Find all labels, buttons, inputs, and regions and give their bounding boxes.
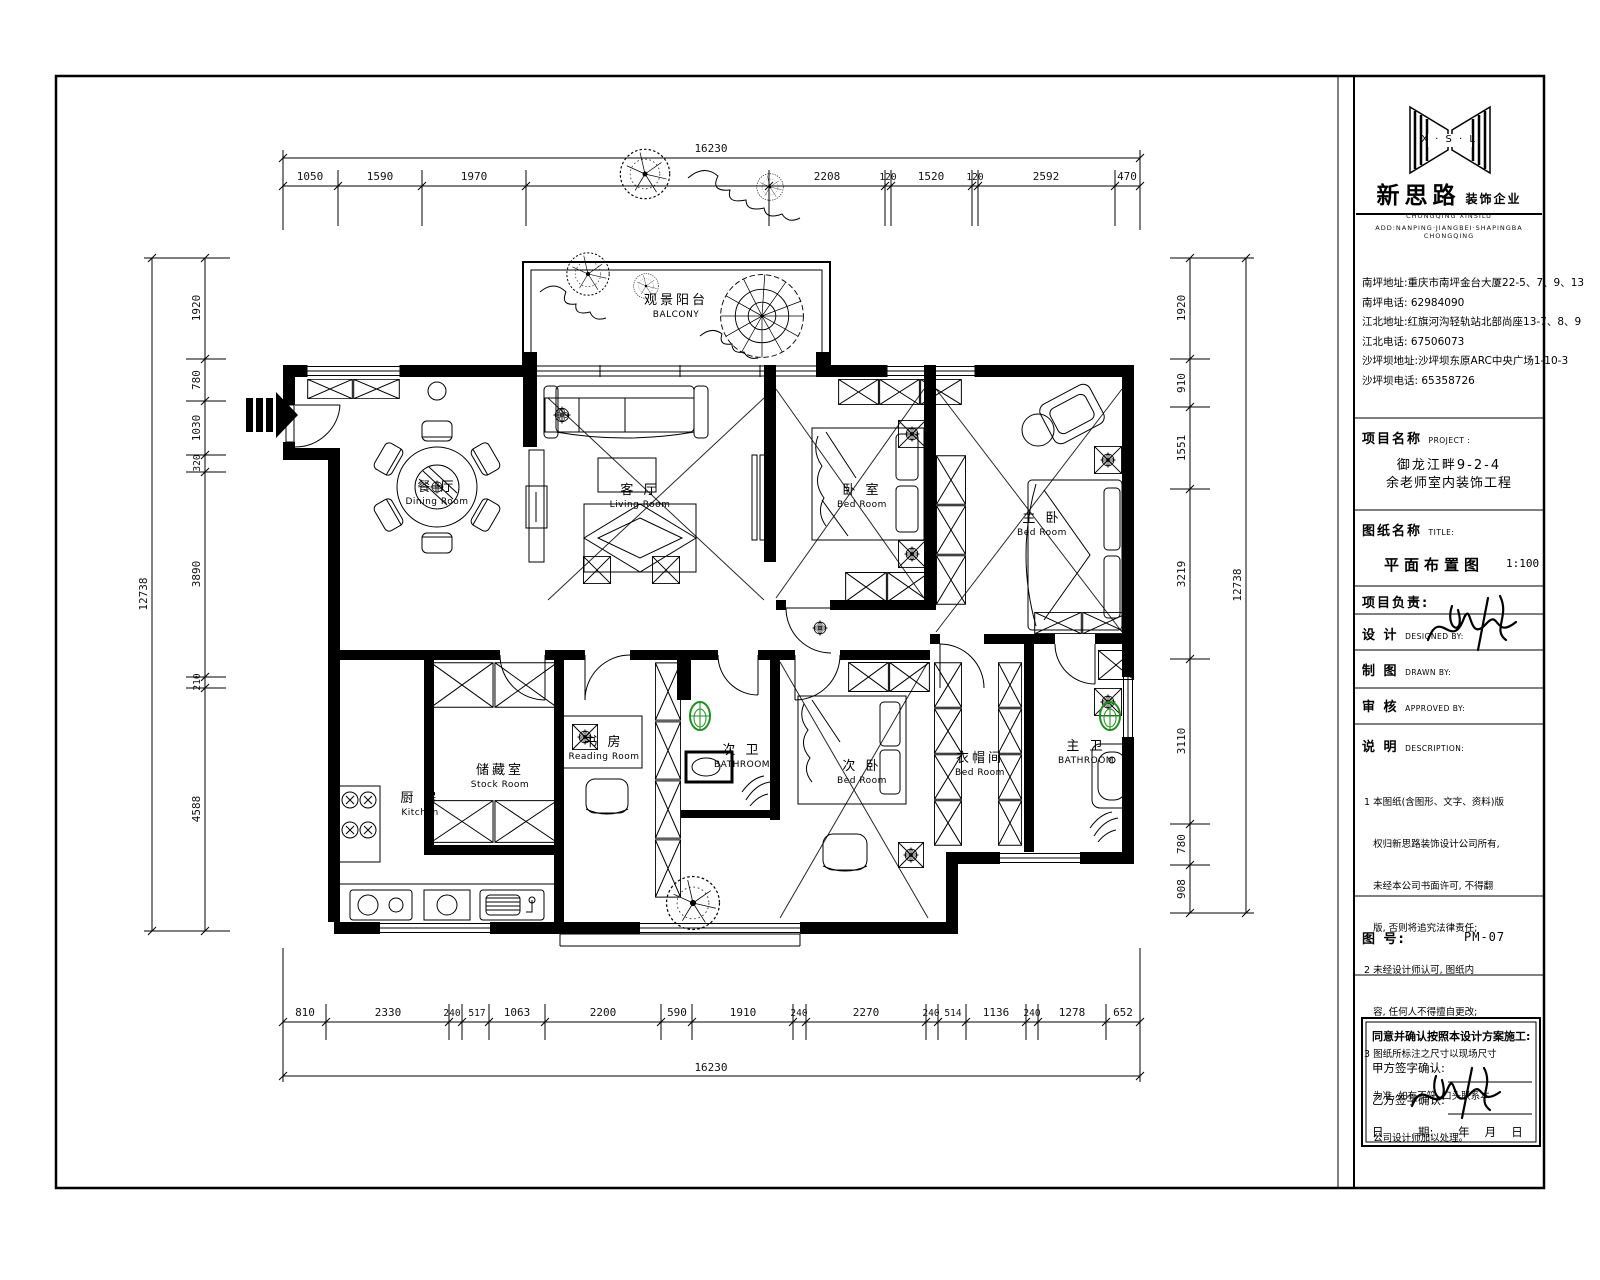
room-label-bedroom1: 卧 室	[842, 482, 881, 498]
dim: 2208	[814, 170, 841, 183]
dim: 240	[790, 1008, 807, 1019]
room-label-kitchen: 厨 房	[400, 790, 439, 806]
dim: 120	[966, 172, 983, 183]
dim: 590	[667, 1006, 687, 1019]
address-line: 沙坪坝电话: 65358726	[1362, 372, 1584, 392]
party-a-label: 甲方签字确认:	[1372, 1060, 1445, 1076]
project-name-line1: 御龙江畔9-2-4	[1356, 454, 1542, 473]
room-label-reading: 书 房	[584, 734, 623, 750]
dim: 780	[190, 370, 203, 390]
room-label-stock: 储藏室	[476, 762, 524, 778]
leader-label: 项目负责:	[1362, 592, 1429, 611]
notes-label-en: DESCRIPTION:	[1405, 744, 1464, 753]
room-label-en: BATHROOM	[1058, 756, 1114, 766]
dim: 2330	[375, 1006, 402, 1019]
room-label-en: Bed Room	[837, 776, 887, 786]
dim: 240	[922, 1008, 939, 1019]
sheet-scale: 1:100	[1506, 557, 1539, 570]
dim: 2592	[1033, 170, 1060, 183]
note-line: 容, 任何人不得擅自更改;	[1364, 1006, 1540, 1020]
design-label-en: DESIGNED BY:	[1405, 632, 1464, 641]
dimension-left: 12738 1920 780 1030 320 3890 210 4588	[137, 254, 230, 935]
company-addresses: 南坪地址:重庆市南坪金台大厦22-5、7、9、13 南坪电话: 62984090…	[1362, 274, 1584, 391]
dim: 470	[1117, 170, 1137, 183]
dim: 1551	[1175, 435, 1188, 462]
dim: 1063	[504, 1006, 531, 1019]
room-label-bedroom2: 次 卧	[842, 758, 881, 774]
room-label-en: Bed Room	[1017, 528, 1067, 538]
dimension-bottom: 16230 810 2330 240 517 1063 2200 590 191…	[279, 948, 1144, 1082]
dim: 3890	[190, 561, 203, 588]
project-label: 项目名称	[1362, 432, 1422, 447]
dim: 1590	[367, 170, 394, 183]
dim: 240	[443, 1008, 460, 1019]
date-value: 年 月 日	[1458, 1124, 1523, 1140]
note-line: 权归新思路装饰设计公司所有,	[1364, 838, 1540, 852]
dim: 120	[879, 172, 896, 183]
note-line: 未经本公司书面许可, 不得翻	[1364, 880, 1540, 894]
room-label-balcony: 观景阳台	[644, 293, 708, 308]
dim-top-total: 16230	[694, 142, 727, 155]
project-name-line2: 余老师室内装饰工程	[1356, 472, 1542, 491]
company-suffix: 装饰企业	[1466, 192, 1522, 206]
sheet-label: 图纸名称	[1362, 524, 1422, 539]
garden-trees	[620, 149, 800, 220]
dim: 1278	[1059, 1006, 1086, 1019]
dimension-top: 16230 1050 1590 1970 2208 120 1520 120 2…	[279, 142, 1144, 230]
room-label-bath1: 主 卫	[1066, 739, 1105, 754]
title-block: X · S · L 新思路 装饰企业 CHONGQING XINSILU ADD…	[1354, 76, 1544, 1188]
dim: 4588	[190, 796, 203, 823]
dim: 908	[1175, 879, 1188, 899]
address-line: 南坪地址:重庆市南坪金台大厦22-5、7、9、13	[1362, 274, 1584, 294]
tv-cabinet	[526, 450, 547, 562]
room-label-en: Bed Room	[955, 768, 1005, 778]
room-label-living: 客 厅	[620, 482, 659, 498]
room-label-en: Dining Room	[405, 497, 468, 507]
dim: 2200	[590, 1006, 617, 1019]
date-label: 日 期:	[1372, 1124, 1433, 1140]
sheet-no-label: 图 号:	[1362, 928, 1406, 947]
confirm-line: 同意并确认按照本设计方案施工:	[1372, 1028, 1530, 1044]
bed-master	[1022, 381, 1122, 630]
dim: 1970	[461, 170, 488, 183]
room-label-master: 主 卧	[1022, 511, 1061, 526]
company-name: 新思路	[1376, 183, 1460, 209]
dim: 1910	[730, 1006, 757, 1019]
desk	[562, 716, 642, 814]
dim-right-total: 12738	[1231, 568, 1244, 601]
dim: 210	[192, 673, 203, 690]
dimension-right: 12738 1920 910 1551 3219 3110 780 908	[1170, 254, 1254, 917]
room-label-cloak: 衣帽间	[956, 750, 1004, 766]
dim: 1050	[297, 170, 324, 183]
room-label-en: Living Room	[610, 500, 671, 510]
note-line: 2 未经设计师认可, 图纸内	[1364, 964, 1540, 978]
room-label-en: Stock Room	[471, 780, 529, 790]
address-line: 沙坪坝地址:沙坪坝东原ARC中央广场1-10-3	[1362, 352, 1584, 372]
dim: 1136	[983, 1006, 1010, 1019]
sheet-label-en: TITLE:	[1429, 528, 1455, 537]
party-b-label: 乙方签字确认:	[1372, 1092, 1445, 1108]
room-label-dining: 餐 厅	[417, 479, 456, 495]
room-label-en: Reading Room	[568, 752, 639, 762]
sheet-border	[56, 76, 1544, 1188]
dim: 320	[192, 454, 203, 471]
tree-icon	[667, 877, 720, 930]
project-label-en: PROJECT :	[1429, 436, 1471, 445]
walls	[283, 352, 1134, 934]
address-line: 江北电话: 67506073	[1362, 333, 1584, 353]
dim: 652	[1113, 1006, 1133, 1019]
sheet-name: 平面布置图	[1384, 554, 1484, 575]
tree-icon	[567, 253, 609, 295]
light-icon	[812, 620, 827, 635]
dim: 780	[1175, 834, 1188, 854]
dim: 1920	[1175, 295, 1188, 322]
notes-body: 1 本图纸(含图形、文字、资料)版 权归新思路装饰设计公司所有, 未经本公司书面…	[1364, 768, 1540, 1174]
dim: 1520	[918, 170, 945, 183]
dim: 517	[468, 1008, 485, 1019]
notes-label: 说 明	[1362, 740, 1399, 755]
room-label-en: BATHROOM	[714, 760, 770, 770]
dim: 240	[1023, 1008, 1040, 1019]
spiral-tree-icon	[721, 275, 804, 358]
sofa	[544, 386, 708, 438]
plant	[428, 382, 446, 400]
approve-label-en: APPROVED BY:	[1405, 704, 1465, 713]
room-label-bath2: 次 卫	[722, 742, 761, 758]
dim: 514	[944, 1008, 961, 1019]
dim: 810	[295, 1006, 315, 1019]
dim: 2270	[853, 1006, 880, 1019]
dim-bottom-total: 16230	[694, 1061, 727, 1074]
draw-label: 制 图	[1362, 664, 1399, 679]
design-label: 设 计	[1362, 628, 1399, 643]
address-line: 南坪电话: 62984090	[1362, 294, 1584, 314]
company-en2: ADD:NANPING·JIANGBEI·SHAPINGBA CHONGQING	[1356, 224, 1542, 240]
draw-label-en: DRAWN BY:	[1405, 668, 1451, 677]
dim: 1920	[190, 295, 203, 322]
drawing-sheet: 16230 1050 1590 1970 2208 120 1520 120 2…	[0, 0, 1600, 1280]
dim: 3110	[1175, 728, 1188, 755]
room-label-en: Bed Room	[837, 500, 887, 510]
room-label-en: Kitchen	[401, 808, 438, 818]
address-line: 江北地址:红旗河沟轻轨站北部尚座13-7、8、9	[1362, 313, 1584, 333]
dim: 1030	[190, 415, 203, 442]
logo-letters: X · S · L	[1356, 134, 1542, 145]
note-line: 1 本图纸(含图形、文字、资料)版	[1364, 796, 1540, 810]
dim-left-total: 12738	[137, 577, 150, 610]
balcony	[523, 253, 830, 365]
approve-label: 审 核	[1362, 700, 1399, 715]
sheet-no-value: PM-07	[1464, 930, 1505, 944]
dim: 3219	[1175, 561, 1188, 588]
room-label-en: BALCONY	[653, 310, 699, 320]
dim: 910	[1175, 373, 1188, 393]
company-en1: CHONGQING XINSILU	[1356, 212, 1542, 220]
